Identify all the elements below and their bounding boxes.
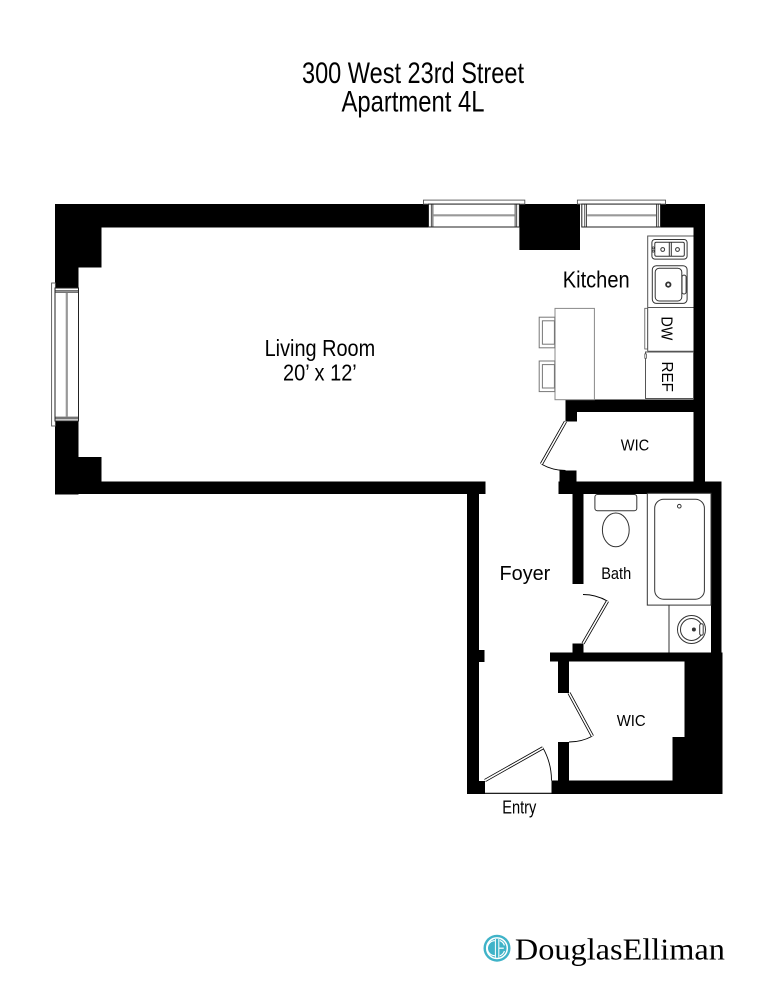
svg-text:Entry: Entry [502, 797, 536, 817]
svg-text:Living Room: Living Room [265, 335, 376, 361]
svg-text:WIC: WIC [621, 438, 650, 455]
svg-text:Kitchen: Kitchen [563, 267, 630, 293]
svg-text:DouglasElliman: DouglasElliman [515, 933, 725, 967]
svg-text:Bath: Bath [601, 564, 631, 583]
svg-text:20’ x 12’: 20’ x 12’ [283, 359, 357, 385]
svg-text:300 West 23rd Street: 300 West 23rd Street [302, 58, 524, 90]
svg-text:DW: DW [658, 317, 675, 341]
svg-text:Foyer: Foyer [500, 563, 551, 585]
svg-text:REF: REF [658, 362, 675, 393]
svg-text:Apartment 4L: Apartment 4L [342, 86, 485, 118]
svg-text:WIC: WIC [617, 713, 646, 730]
